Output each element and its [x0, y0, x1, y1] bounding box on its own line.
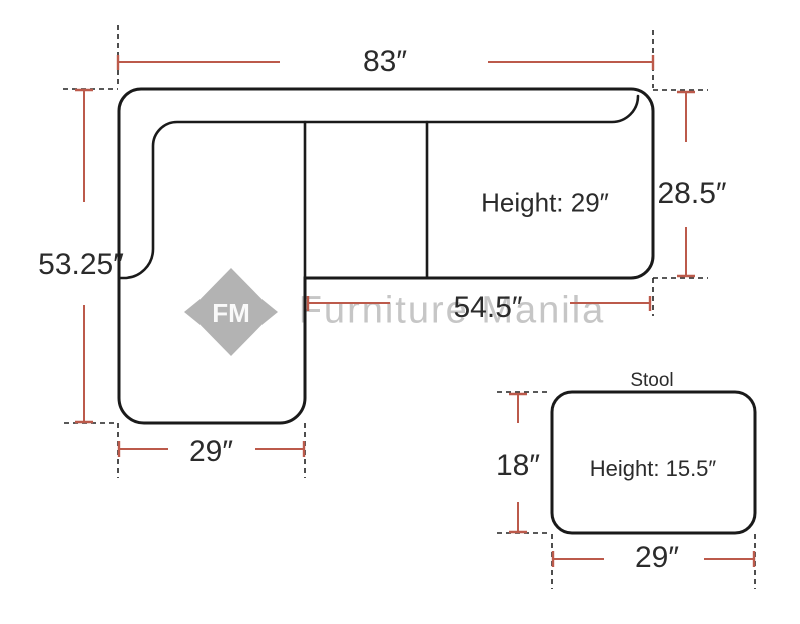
sofa-outline-group — [119, 89, 653, 423]
logo-left-triangle-icon — [184, 299, 200, 325]
diagram-canvas: FM — [0, 0, 800, 624]
sofa-chaise-width-label: 29″ — [189, 435, 233, 469]
logo-right-triangle-icon — [262, 299, 278, 325]
sofa-overall-width-label: 83″ — [363, 45, 407, 79]
stool-title-label: Stool — [630, 370, 673, 392]
dimension-diagram: Furniture Manila FM — [0, 0, 800, 624]
sofa-chaise-depth-label: 53.25″ — [38, 248, 124, 282]
stool-depth-label: 18″ — [496, 449, 540, 483]
sofa-seat-width-label: 54.5″ — [453, 291, 522, 325]
sofa-height-label: Height: 29″ — [481, 188, 609, 219]
sofa-outer-boundary — [119, 89, 653, 423]
stool-width-label: 29″ — [635, 541, 679, 575]
sofa-body-depth-label: 28.5″ — [657, 177, 726, 211]
logo-monogram: FM — [212, 298, 250, 328]
stool-height-label: Height: 15.5″ — [590, 456, 716, 482]
watermark-logo: FM — [184, 268, 278, 356]
